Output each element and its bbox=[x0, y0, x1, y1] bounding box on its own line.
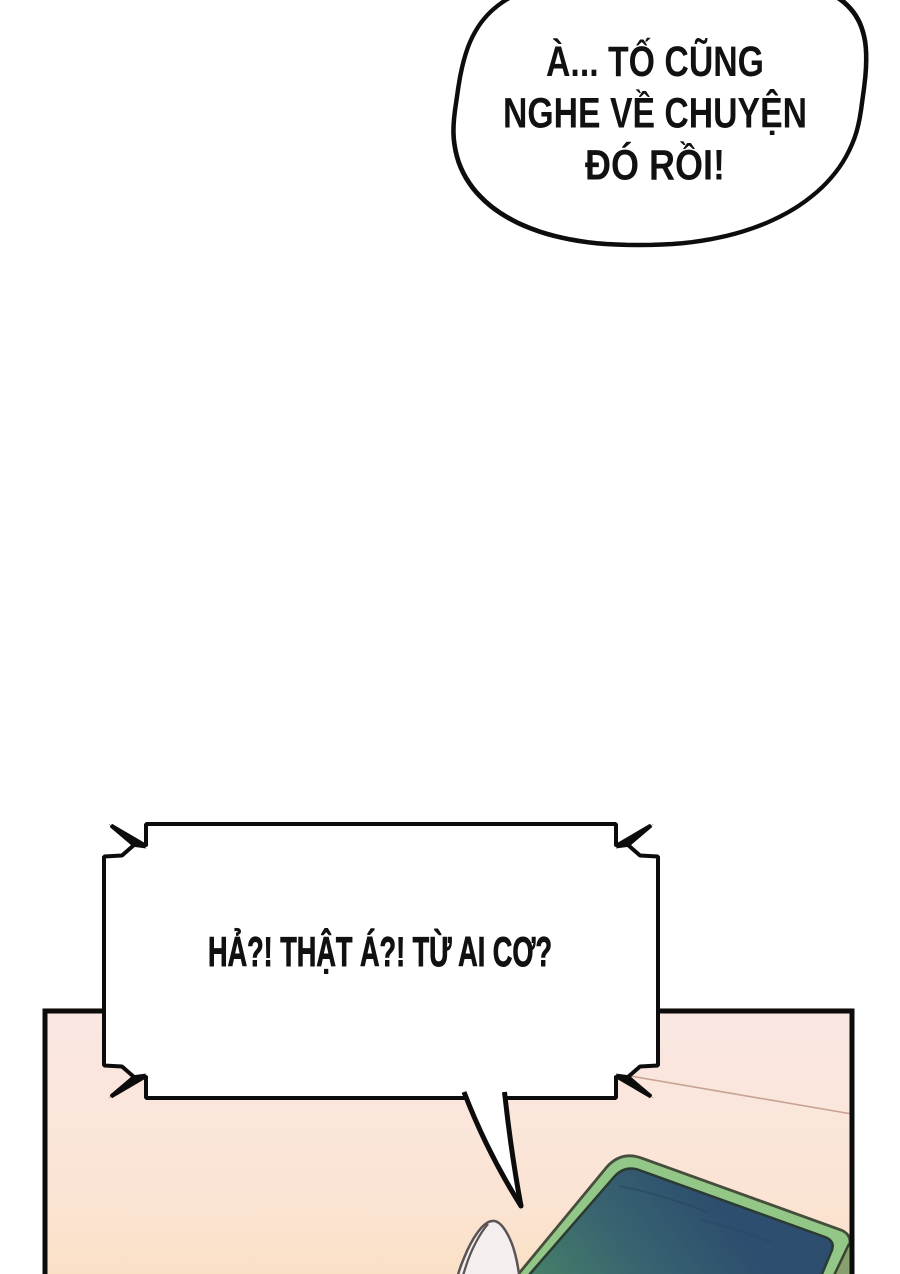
svg-text:À... TỐ CŨNG: À... TỐ CŨNG bbox=[546, 37, 764, 86]
svg-text:NGHE VỀ CHUYỆN: NGHE VỀ CHUYỆN bbox=[503, 89, 807, 138]
svg-text:ĐÓ RỒI!: ĐÓ RỒI! bbox=[585, 141, 725, 190]
svg-text:HẢ?! THẬT Á?! TỪ AI CƠ?: HẢ?! THẬT Á?! TỪ AI CƠ? bbox=[208, 927, 552, 975]
